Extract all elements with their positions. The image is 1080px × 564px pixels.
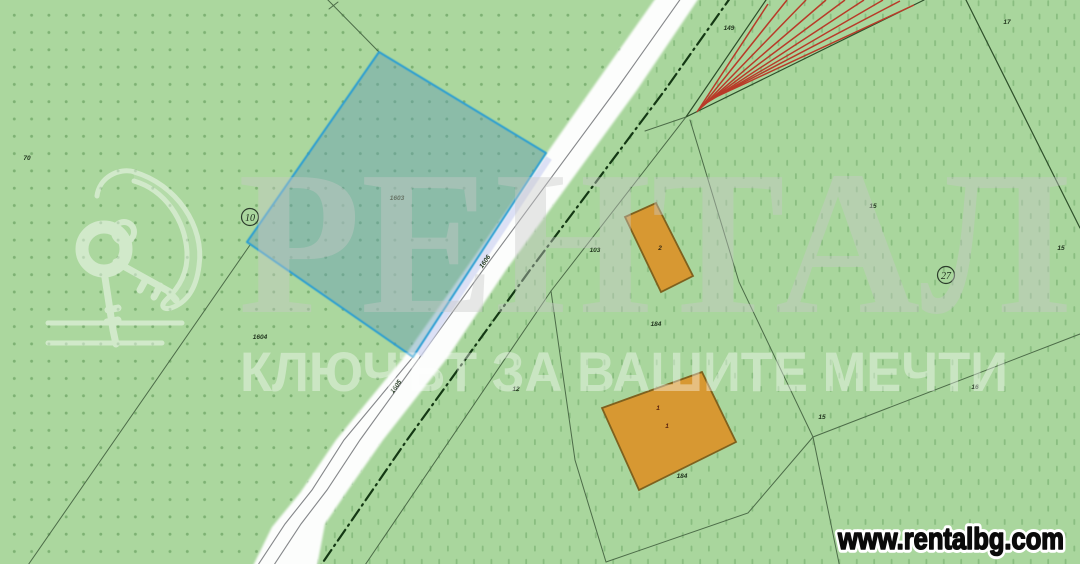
svg-text:www.rentalbg.com: www.rentalbg.com <box>837 521 1064 556</box>
svg-text:17: 17 <box>1003 19 1011 26</box>
svg-text:РЕНТАЛ: РЕНТАЛ <box>238 128 1070 357</box>
svg-text:15: 15 <box>818 414 826 421</box>
svg-text:184: 184 <box>677 473 688 480</box>
svg-text:70: 70 <box>23 155 31 162</box>
svg-text:КЛЮЧЪТ ЗА ВАШИТЕ МЕЧТИ: КЛЮЧЪТ ЗА ВАШИТЕ МЕЧТИ <box>240 340 1008 403</box>
svg-text:1: 1 <box>656 405 660 412</box>
svg-text:149: 149 <box>724 25 735 32</box>
svg-text:1: 1 <box>665 423 669 430</box>
